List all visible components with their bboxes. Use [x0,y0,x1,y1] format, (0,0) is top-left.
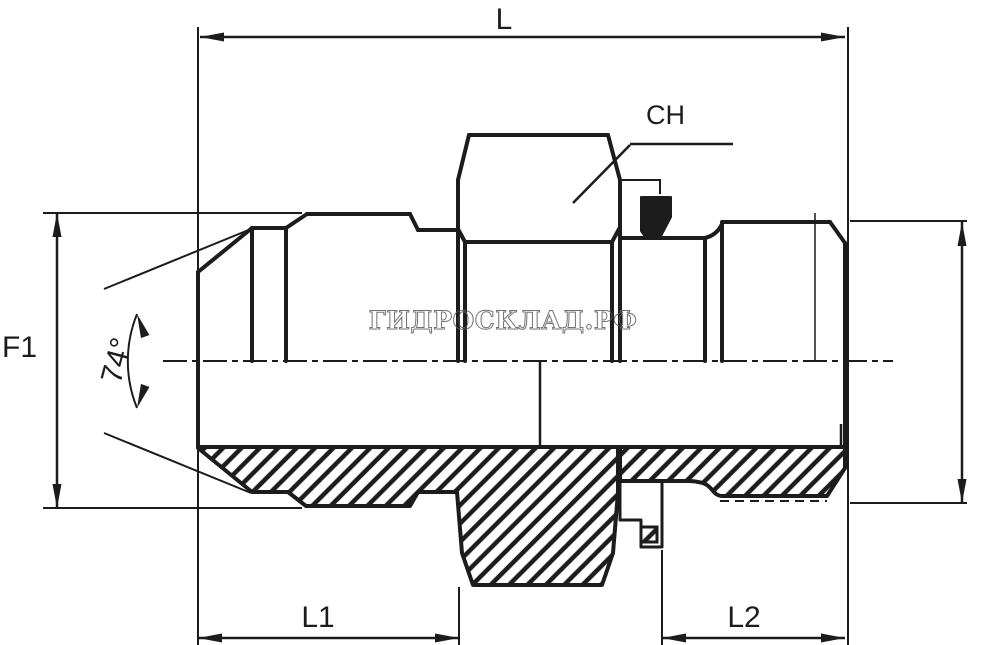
technical-drawing-canvas: L F1 74° CH L1 L2 [0,0,1004,645]
dim-left-length: L1 [198,587,459,645]
dim-label-L: L [496,3,513,36]
dim-label-F1: F1 [2,331,37,364]
dim-right-thread-diameter [850,221,967,503]
bonded-seal [641,197,671,238]
section-right-hatch [620,447,845,496]
part-outline [198,135,845,447]
seal-section-square [641,527,657,542]
dim-hex-size: CH [573,100,733,203]
dim-label-L2: L2 [727,601,760,634]
fitting-section-drawing: L F1 74° CH L1 L2 [0,0,1004,645]
dim-label-L1: L1 [301,601,334,634]
section-left-hatch [198,447,618,585]
dim-label-74deg: 74° [95,334,139,386]
watermark-text: ГИДРОСКЛАД.РФ [369,306,638,335]
dim-right-length: L2 [662,550,845,645]
dim-label-CH: CH [646,100,685,130]
